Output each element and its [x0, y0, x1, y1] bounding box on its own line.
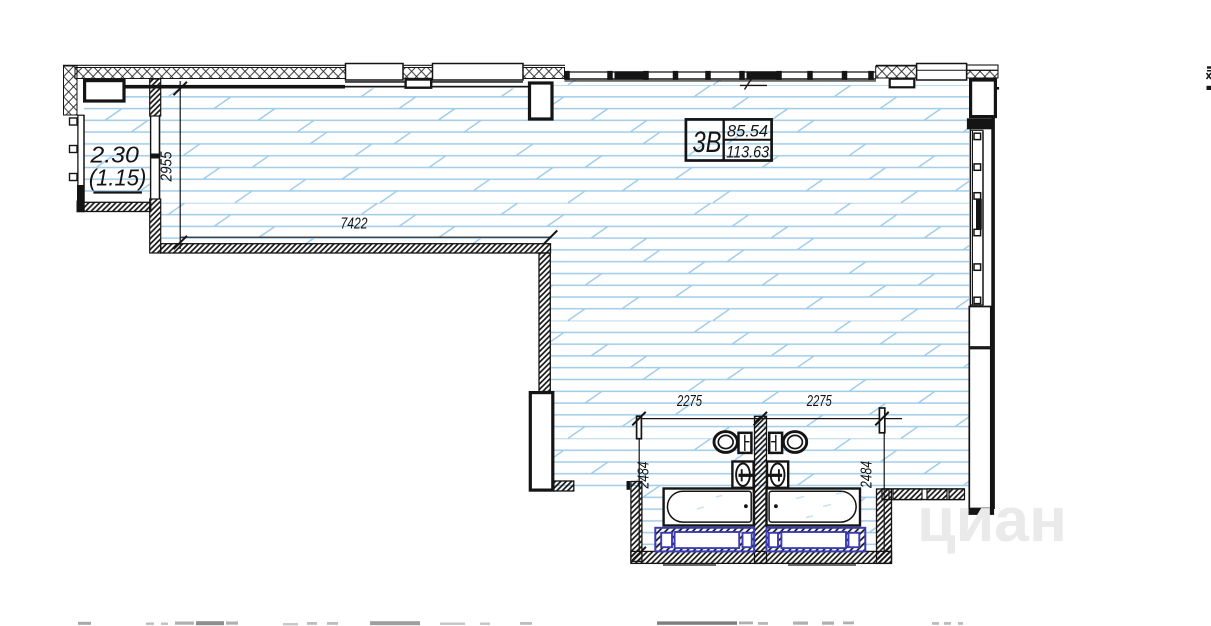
svg-text:2484: 2484 — [859, 461, 876, 489]
svg-text:85.54: 85.54 — [727, 121, 768, 140]
svg-text:7422: 7422 — [341, 216, 368, 233]
svg-text:3В: 3В — [693, 126, 722, 159]
svg-text:2955: 2955 — [159, 151, 176, 182]
svg-text:2275: 2275 — [806, 393, 832, 410]
svg-text:2484: 2484 — [636, 461, 653, 489]
svg-text:циан: циан — [917, 486, 1067, 555]
svg-text:2275: 2275 — [676, 393, 702, 410]
svg-text:113.63: 113.63 — [726, 142, 769, 161]
svg-text:(1.15): (1.15) — [89, 165, 147, 191]
